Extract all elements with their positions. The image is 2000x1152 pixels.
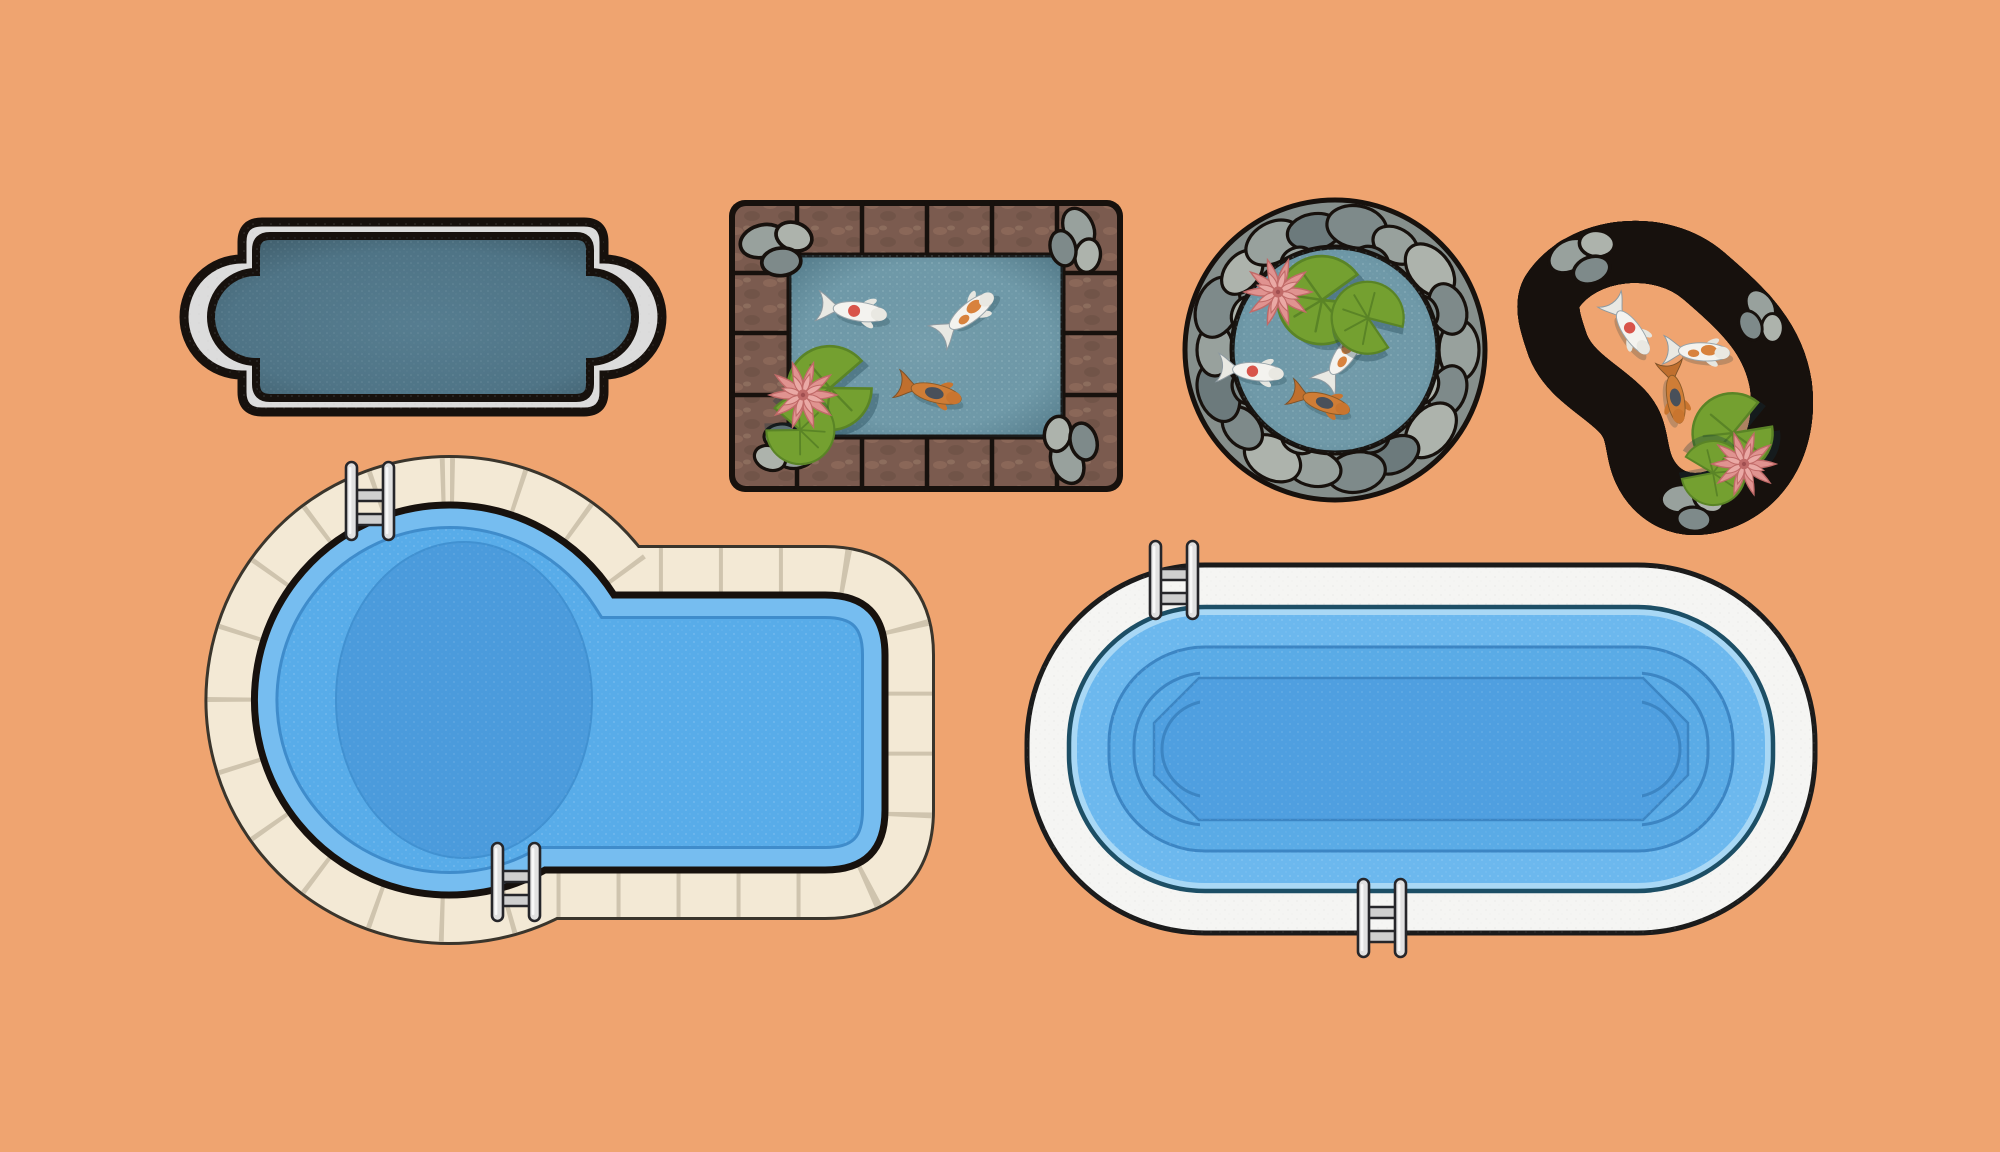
roman-pool-water xyxy=(211,236,635,398)
illustration-canvas xyxy=(0,0,2000,1152)
oval-swimming-pool xyxy=(1024,538,1820,966)
kidney-koi-pond xyxy=(1484,200,1824,552)
roman-lap-pool xyxy=(178,212,668,424)
oval-pool-water xyxy=(1069,607,1773,891)
koi-white-red-spot xyxy=(1596,290,1663,366)
koi-white-orange xyxy=(1662,334,1734,370)
kidney-swimming-pool xyxy=(196,448,980,948)
round-koi-pond xyxy=(1172,192,1502,518)
